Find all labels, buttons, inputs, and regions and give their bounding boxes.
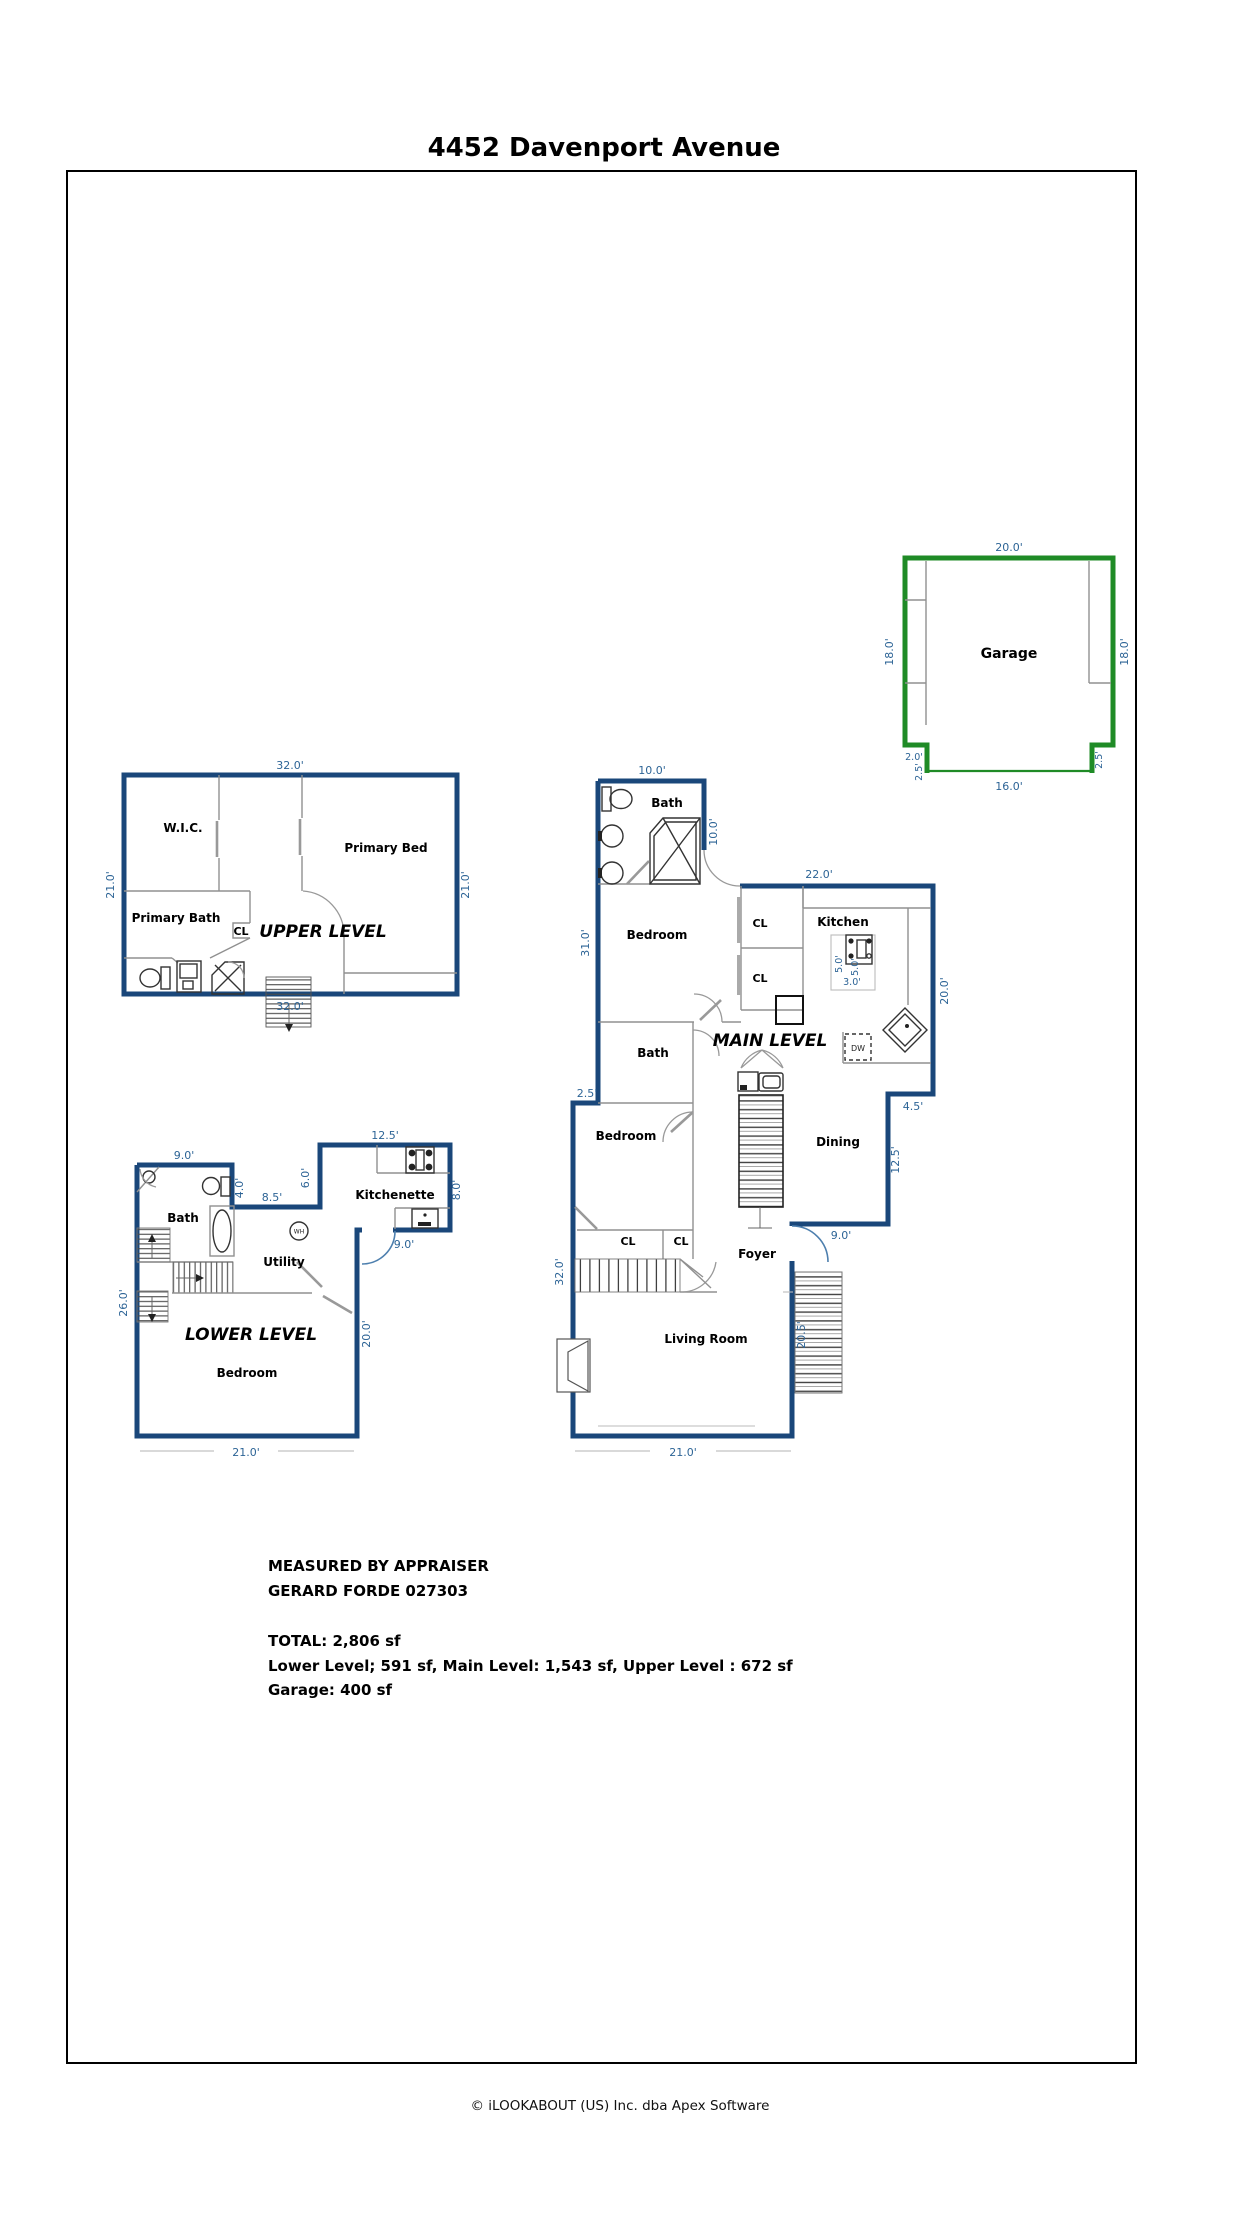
- summary-garage-area: Garage: 400 sf: [268, 1681, 393, 1699]
- upper-dim-left: 21.0': [104, 871, 117, 899]
- lower-stairs-upper: [137, 1228, 170, 1262]
- garage-plan: Garage 20.0' 18.0' 18.0' 2.0' 2.5' 2.5' …: [883, 541, 1131, 793]
- garage-dim-right: 18.0': [1118, 638, 1131, 666]
- garage-dim-notch-right: 2.5': [1094, 751, 1105, 769]
- main-dim-entry-side: 20.5': [795, 1321, 808, 1349]
- main-cl4-label: CL: [673, 1235, 688, 1248]
- upper-cl-label: CL: [233, 925, 248, 938]
- garage-dim-notch-left: 2.5': [914, 763, 925, 781]
- toilet-fixture: [203, 1177, 231, 1196]
- toilet-fixture: [140, 967, 170, 989]
- main-bedroom-mid-label: Bedroom: [596, 1129, 657, 1143]
- garage-dim-bottom: 16.0': [995, 780, 1023, 793]
- main-dim-left-step: 2.5': [577, 1087, 598, 1100]
- lower-dim-kitchenette-bottom: 9.0': [394, 1238, 415, 1251]
- lower-dim-left: 26.0': [117, 1289, 130, 1317]
- main-dim-counter-a: 5.0': [834, 955, 845, 973]
- main-dining-label: Dining: [816, 1135, 860, 1149]
- garage-walls: [905, 558, 1113, 773]
- dishwasher-fixture: DW: [845, 1034, 871, 1060]
- upper-dim-bottom: 32.0': [276, 1000, 304, 1013]
- kitchenette-stove-fixture: [406, 1147, 434, 1173]
- main-bedroom-top-label: Bedroom: [627, 928, 688, 942]
- page-title: 4452 Davenport Avenue: [428, 133, 781, 163]
- kitchenette-sink-fixture: [412, 1209, 438, 1228]
- dishwasher-label: DW: [851, 1044, 865, 1053]
- toilet-fixture: [602, 787, 632, 811]
- floorplan-page: 4452 Davenport Avenue © iLOOKABOUT (US) …: [0, 0, 1241, 2240]
- main-bath-mid-label: Bath: [637, 1046, 669, 1060]
- main-dim-bottom: 21.0': [669, 1446, 697, 1459]
- lower-door-arc: [362, 1231, 395, 1264]
- main-stairs: [739, 1095, 783, 1207]
- upper-dim-right: 21.0': [459, 871, 472, 899]
- fireplace-fixture: [557, 1339, 590, 1392]
- main-dim-bath-right: 10.0': [707, 818, 720, 846]
- garage-dim-top: 20.0': [995, 541, 1023, 554]
- main-cl3-label: CL: [620, 1235, 635, 1248]
- main-kitchen-label: Kitchen: [817, 915, 869, 929]
- closet-door-leaf: [737, 897, 741, 943]
- main-level-title: MAIN LEVEL: [713, 1031, 828, 1051]
- lower-dim-kitchenette-top: 12.5': [371, 1129, 399, 1142]
- laundry-fixture: [738, 1072, 783, 1091]
- main-dim-right-mid: 12.5': [889, 1146, 902, 1174]
- summary-total: TOTAL: 2,806 sf: [268, 1632, 401, 1650]
- lower-kitchenette-label: Kitchenette: [355, 1188, 434, 1202]
- lower-bedroom-label: Bedroom: [217, 1366, 278, 1380]
- lower-level-title: LOWER LEVEL: [185, 1325, 317, 1345]
- summary-block: MEASURED BY APPRAISER GERARD FORDE 02730…: [268, 1557, 793, 1699]
- closet-door-leaf: [737, 955, 741, 995]
- main-living-room-label: Living Room: [664, 1332, 747, 1346]
- upper-wic-label: W.I.C.: [163, 821, 202, 835]
- corner-sink-fixture: [883, 1008, 927, 1052]
- lower-dim-bath-right: 4.0': [233, 1178, 246, 1199]
- main-dim-kitchen-right: 20.0': [938, 977, 951, 1005]
- down-stairs: [575, 1259, 680, 1292]
- summary-appraiser: GERARD FORDE 027303: [268, 1582, 468, 1600]
- lower-utility-label: Utility: [263, 1255, 305, 1269]
- bathtub-fixture: [210, 1206, 234, 1256]
- upper-level-title: UPPER LEVEL: [259, 922, 386, 942]
- upper-primary-bath-label: Primary Bath: [132, 911, 221, 925]
- water-heater-fixture: WH: [290, 1222, 308, 1240]
- lower-dim-right: 20.0': [360, 1320, 373, 1348]
- main-dim-counter-c: 3.0': [843, 977, 861, 988]
- garage-label: Garage: [981, 646, 1038, 662]
- corner-shower-fixture: [650, 818, 700, 884]
- floorplan-canvas: 4452 Davenport Avenue © iLOOKABOUT (US) …: [0, 0, 1241, 2240]
- main-dim-left-lower: 32.0': [553, 1258, 566, 1286]
- lower-dim-bottom: 21.0': [232, 1446, 260, 1459]
- main-dim-bath-top: 10.0': [638, 764, 666, 777]
- garage-dim-notch-width: 2.0': [905, 752, 923, 763]
- vanity-sink-fixture: [177, 961, 201, 992]
- lower-dim-kitchenette-left: 6.0': [299, 1168, 312, 1189]
- main-dim-foyer: 9.0': [831, 1229, 852, 1242]
- footer-copyright: © iLOOKABOUT (US) Inc. dba Apex Software: [471, 2098, 770, 2114]
- lower-dim-bath-top: 9.0': [174, 1149, 195, 1162]
- upper-primary-bed-label: Primary Bed: [344, 841, 427, 855]
- lower-bath-label: Bath: [167, 1211, 199, 1225]
- upper-walls: [124, 775, 457, 994]
- corner-shower-fixture: [137, 1167, 159, 1192]
- lower-level-plan: WH Bath Kitchenette Utility LOWER LEVEL …: [117, 1129, 463, 1459]
- summary-measured-by: MEASURED BY APPRAISER: [268, 1557, 489, 1575]
- main-dim-step: 4.5': [903, 1100, 924, 1113]
- main-dim-kitchen-top: 22.0': [805, 868, 833, 881]
- upper-dim-top: 32.0': [276, 759, 304, 772]
- main-foyer-label: Foyer: [738, 1247, 776, 1261]
- main-level-plan: DW Bath Bedroom: [553, 764, 951, 1459]
- main-cl2-label: CL: [752, 972, 767, 985]
- garage-dim-left: 18.0': [883, 638, 896, 666]
- double-sinks-fixture: [598, 825, 623, 884]
- main-bath-top-label: Bath: [651, 796, 683, 810]
- main-cl1-label: CL: [752, 917, 767, 930]
- front-door-arc: [792, 1226, 828, 1262]
- summary-levels: Lower Level; 591 sf, Main Level: 1,543 s…: [268, 1657, 793, 1675]
- lower-dim-kitchenette-right: 8.0': [450, 1180, 463, 1201]
- lower-dim-hall: 8.5': [262, 1191, 283, 1204]
- main-dim-counter-b: 5.0': [850, 958, 861, 976]
- water-heater-label: WH: [294, 1229, 304, 1236]
- plan-border: [67, 171, 1136, 2063]
- main-dim-left-upper: 31.0': [579, 929, 592, 957]
